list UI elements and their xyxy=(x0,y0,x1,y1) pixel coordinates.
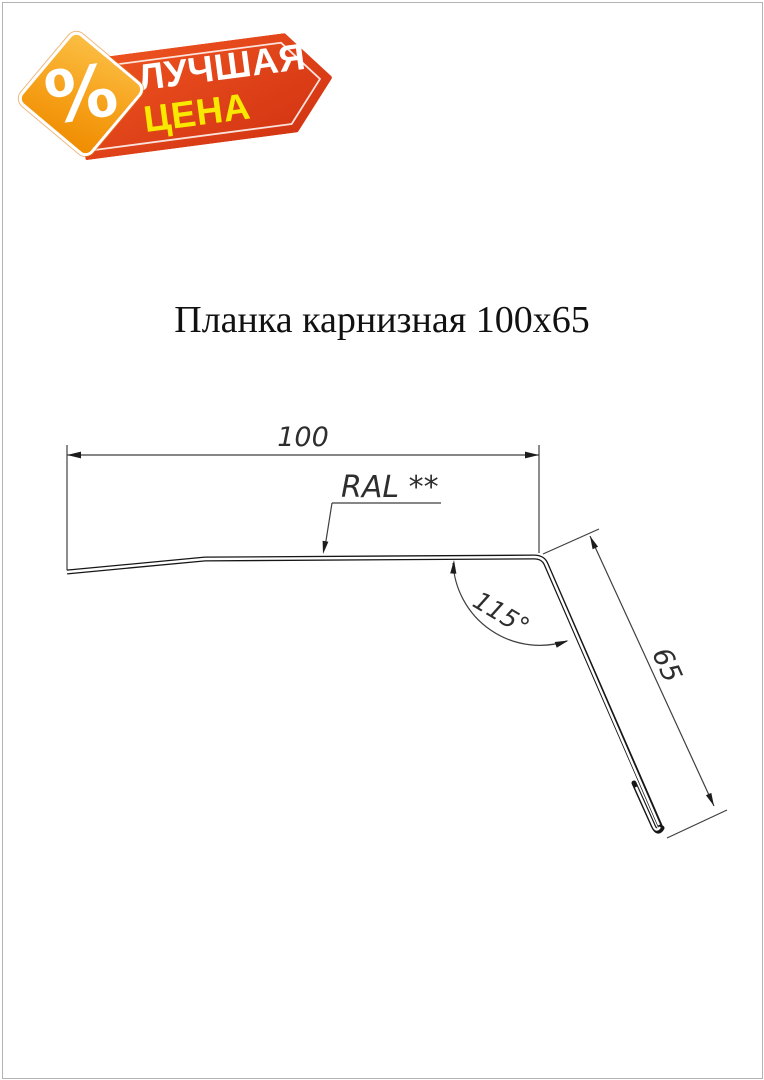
height-dim-label: 65 xyxy=(645,643,687,687)
color-note-label: RAL ** xyxy=(341,470,439,505)
extension-line-top xyxy=(543,529,599,554)
dimension-width xyxy=(67,445,539,570)
percent-icon: % xyxy=(40,53,121,134)
arrow-down-icon xyxy=(706,793,714,806)
dimension-line-height xyxy=(590,536,714,806)
ral-leader xyxy=(323,503,441,554)
promo-badge: ЛУЧШАЯ ЦЕНА % xyxy=(0,0,360,180)
arrow-up-icon xyxy=(590,536,598,549)
arrow-left-icon xyxy=(67,452,81,459)
extension-line-bottom xyxy=(667,810,727,838)
width-dim-label: 100 xyxy=(277,422,329,453)
page: 100 RAL ** 115° 65 xyxy=(0,0,764,1080)
profile-sheet xyxy=(67,557,661,828)
angle-arrow-side-icon xyxy=(555,641,569,648)
page-title: Планка карнизная 100х65 xyxy=(0,298,764,342)
profile-outline xyxy=(67,557,662,831)
leader-arrow-icon xyxy=(323,541,329,554)
angle-label: 115° xyxy=(468,586,535,642)
dimension-height xyxy=(543,529,727,838)
angle-arrow-top-icon xyxy=(450,560,456,574)
leader-line xyxy=(325,503,332,547)
arrow-right-icon xyxy=(525,452,539,459)
profile-sheet-core xyxy=(67,557,659,825)
